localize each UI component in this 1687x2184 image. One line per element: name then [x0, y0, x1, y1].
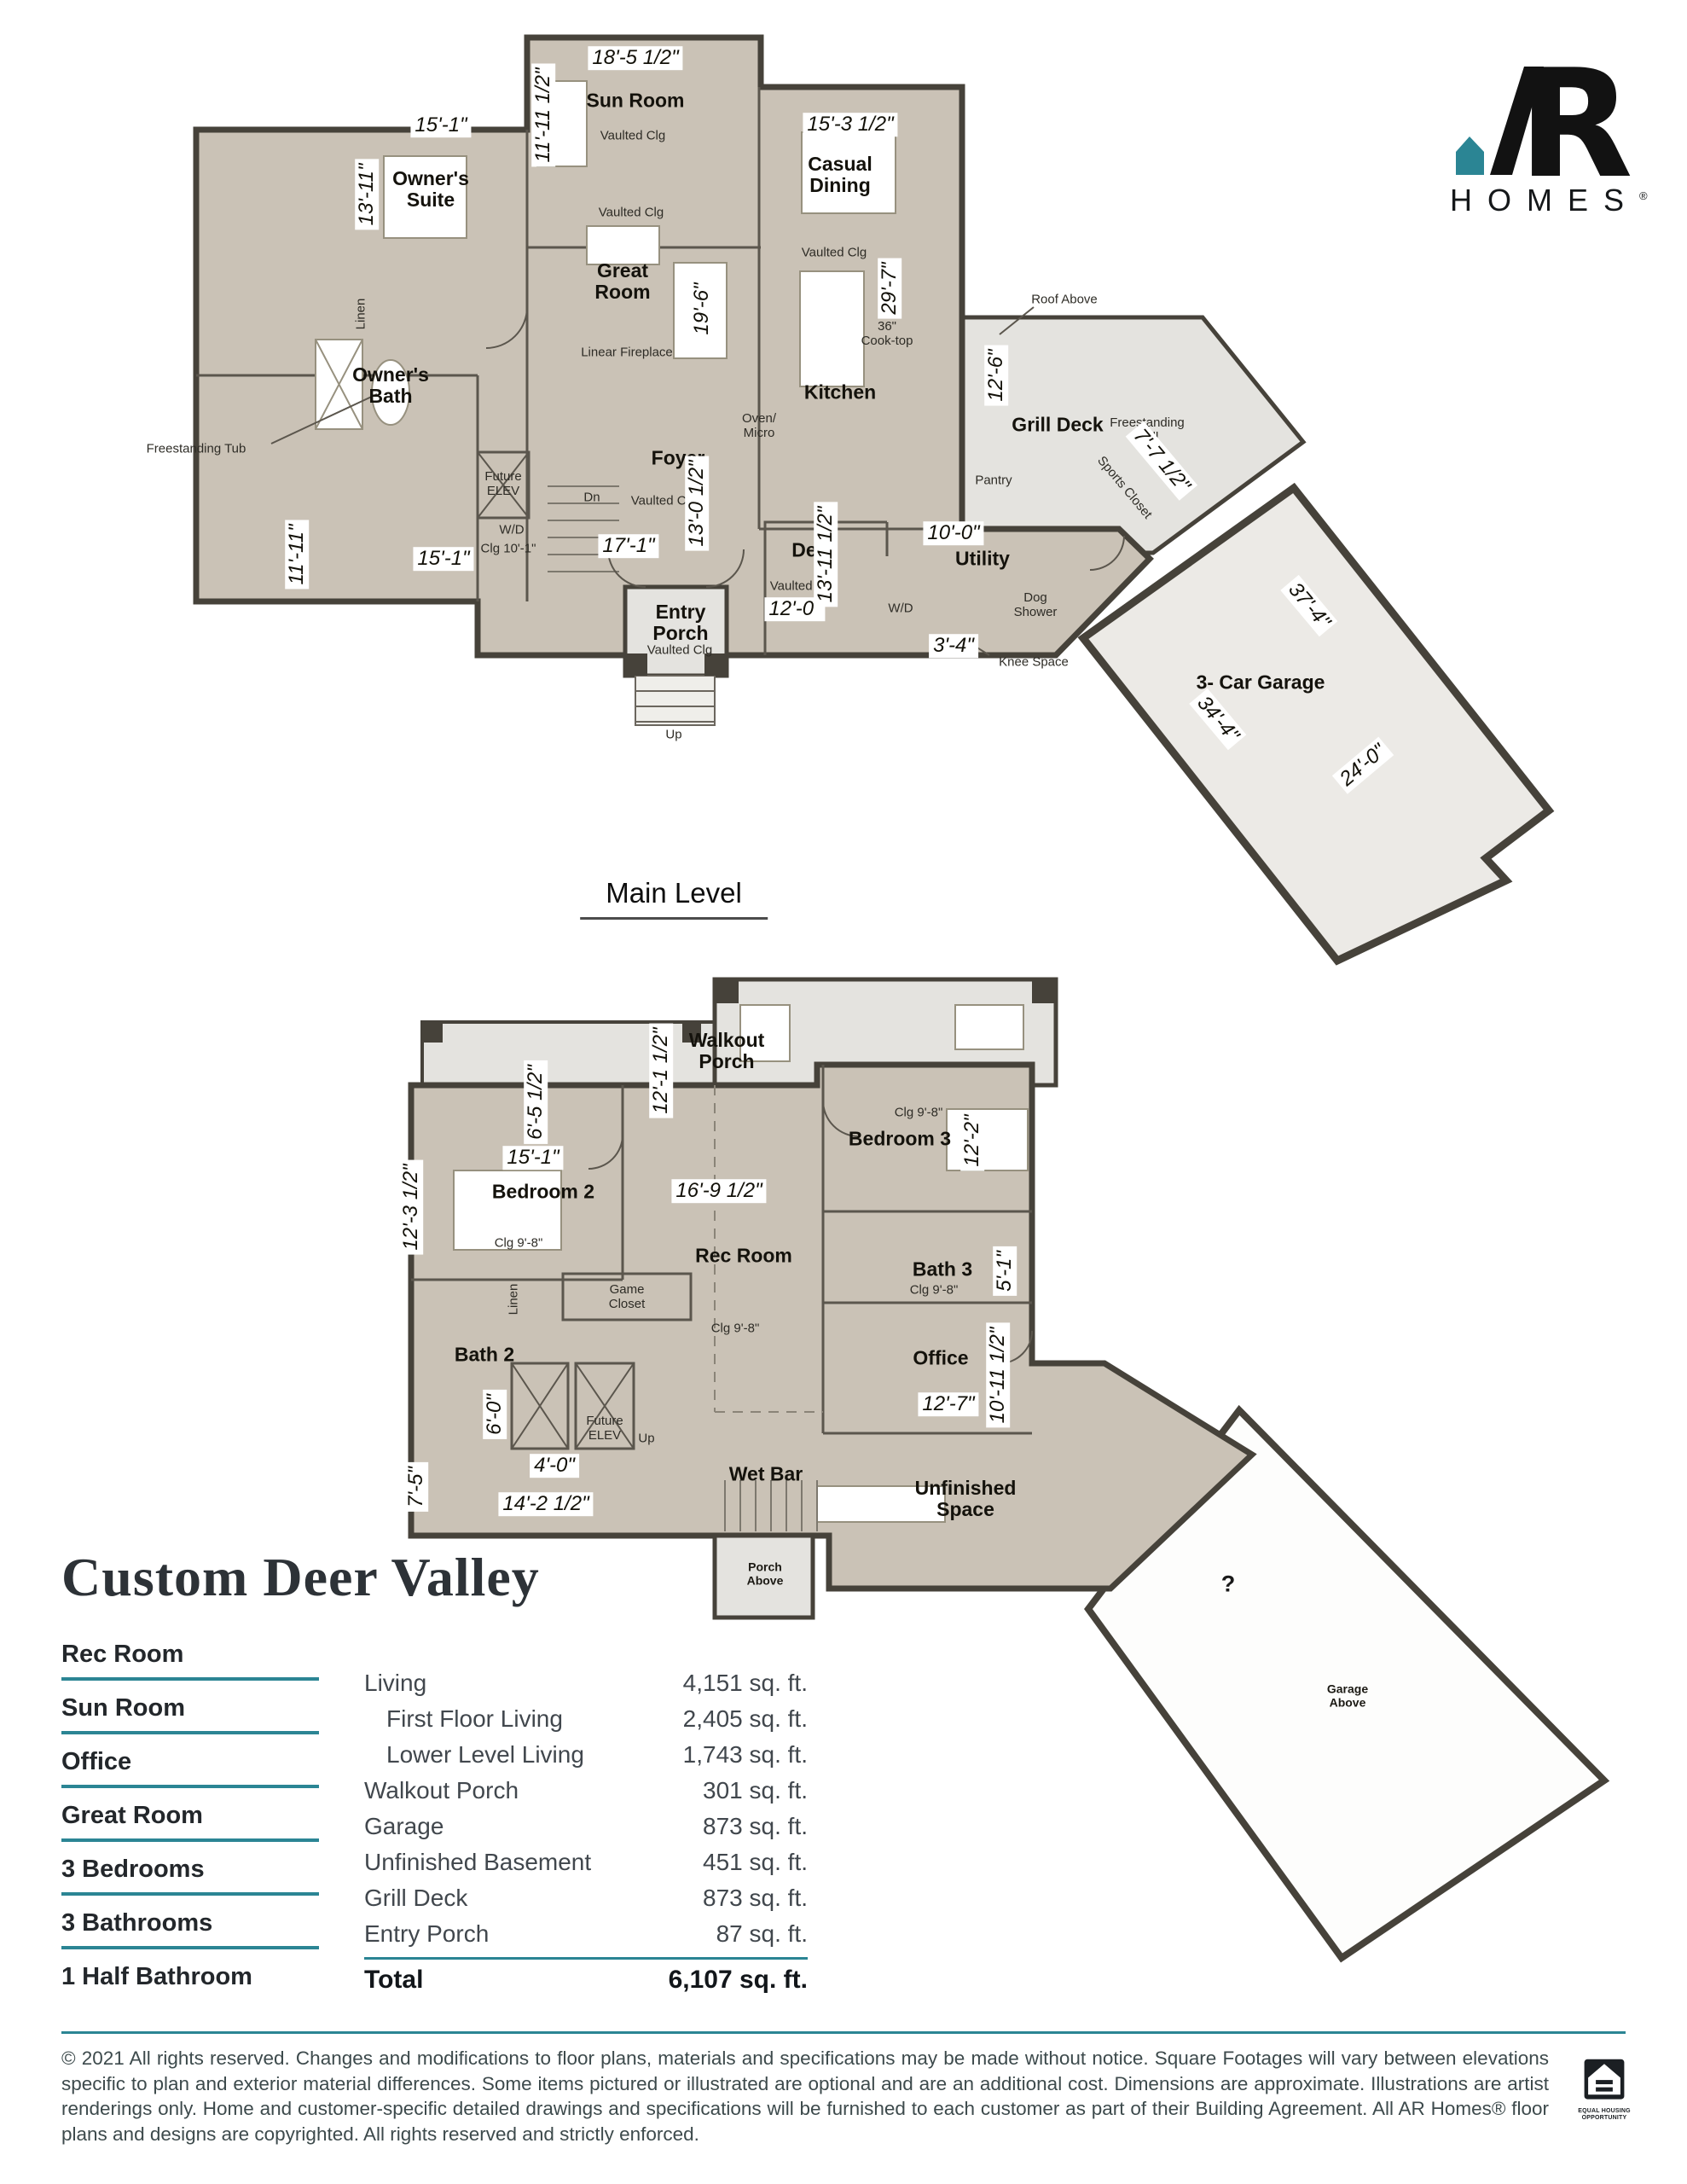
- total-value: 6,107 sq. ft.: [669, 1960, 808, 2001]
- annotation-vaulted-clg: Vaulted Clg: [599, 206, 664, 221]
- room-label-bedroom-2: Bedroom 2: [492, 1182, 594, 1203]
- annotation-vaulted-clg: Vaulted Clg: [600, 130, 665, 144]
- room-label-walkout-porch: Walkout Porch: [680, 1030, 774, 1072]
- area-label: Grill Deck: [364, 1880, 467, 1916]
- dim-label: 13'-11 1/2": [814, 502, 838, 607]
- dim-label: 4'-0": [530, 1454, 579, 1478]
- area-label: Garage: [364, 1809, 443, 1844]
- dim-label: 15'-1": [413, 547, 473, 571]
- area-value: 451 sq. ft.: [703, 1844, 808, 1880]
- annotation-clg-9-8: Clg 9'-8": [895, 1107, 943, 1121]
- table-row: Lower Level Living1,743 sq. ft.: [364, 1737, 808, 1773]
- dim-label: 5'-1": [993, 1246, 1017, 1296]
- annotation-vaulted-clg: Vaulted Clg: [647, 644, 712, 659]
- annotation-cooktop: 36" Cook-top: [860, 320, 914, 349]
- table-row: First Floor Living2,405 sq. ft.: [364, 1701, 808, 1737]
- area-label: First Floor Living: [364, 1701, 563, 1737]
- area-label: Walkout Porch: [364, 1773, 519, 1809]
- equal-housing-logo: EQUAL HOUSING OPPORTUNITY: [1578, 2058, 1631, 2121]
- annotation-garage-above: Garage Above: [1318, 1682, 1377, 1709]
- table-row: Garage873 sq. ft.: [364, 1809, 808, 1844]
- table-row: Walkout Porch301 sq. ft.: [364, 1773, 808, 1809]
- annotation-clg-9-8: Clg 9'-8": [495, 1237, 543, 1252]
- room-label-kitchen: Kitchen: [804, 382, 876, 404]
- room-label-casual-dining: Casual Dining: [793, 154, 887, 196]
- area-value: 87 sq. ft.: [716, 1916, 808, 1952]
- table-row: Entry Porch87 sq. ft.: [364, 1916, 808, 1952]
- entry-steps: [635, 676, 715, 725]
- dim-label: 29'-7": [878, 258, 901, 318]
- room-label-grill-deck: Grill Deck: [1012, 415, 1103, 436]
- area-value: 301 sq. ft.: [703, 1773, 808, 1809]
- table-row: Grill Deck873 sq. ft.: [364, 1880, 808, 1916]
- dim-label: 3'-4": [929, 634, 978, 658]
- dim-label: 15'-1": [502, 1146, 563, 1170]
- dim-label: 15'-3 1/2": [803, 113, 897, 136]
- annotation-future-elev: Future ELEV: [473, 470, 533, 499]
- feature-item: Office: [61, 1747, 319, 1788]
- table-row: Living4,151 sq. ft.: [364, 1665, 808, 1701]
- room-label-entry-porch: Entry Porch: [642, 601, 719, 644]
- annotation-linen: Linen: [355, 299, 369, 330]
- area-label: Living: [364, 1665, 426, 1701]
- equal-housing-caption: EQUAL HOUSING OPPORTUNITY: [1578, 2108, 1631, 2121]
- room-label-owners-bath: Owner's Bath: [346, 364, 436, 407]
- annotation-wd: W/D: [499, 524, 524, 538]
- annotation-linen: Linen: [507, 1284, 522, 1316]
- annotation-roof-above: Roof Above: [1031, 293, 1098, 308]
- dim-label: 12'-7": [918, 1392, 978, 1416]
- main-level-caption: Main Level: [580, 875, 768, 920]
- dim-label: 15'-1": [410, 113, 471, 137]
- feature-item: 3 Bedrooms: [61, 1855, 319, 1896]
- logo-wordmark-text: HOMES: [1450, 183, 1639, 218]
- annotation-linear-fireplace: Linear Fireplace: [581, 346, 673, 361]
- dim-label: 12'-2": [960, 1110, 984, 1170]
- footer-divider: [61, 2031, 1626, 2034]
- area-value: 873 sq. ft.: [703, 1880, 808, 1916]
- dim-label: 14'-2 1/2": [498, 1492, 593, 1516]
- annotation-freestanding-tub: Freestanding Tub: [147, 443, 246, 457]
- room-label-utility: Utility: [955, 549, 1010, 570]
- area-table: Living4,151 sq. ft. First Floor Living2,…: [364, 1665, 808, 2001]
- area-value: 1,743 sq. ft.: [683, 1737, 808, 1773]
- dim-label: 12'-3 1/2": [399, 1159, 423, 1254]
- logo-registered-mark: ®: [1639, 189, 1648, 202]
- dim-label: 6'-0": [483, 1390, 507, 1439]
- annotation-future-elev: Future ELEV: [575, 1414, 635, 1443]
- room-label-garage: 3- Car Garage: [1197, 672, 1325, 694]
- brand-logo: R: [1441, 34, 1646, 256]
- room-label-sun-room: Sun Room: [587, 90, 685, 112]
- annotation-game-closet: Game Closet: [597, 1283, 657, 1312]
- room-label-wet-bar: Wet Bar: [729, 1464, 803, 1485]
- table-total-row: Total6,107 sq. ft.: [364, 1960, 808, 2001]
- annotation-oven-micro: Oven/ Micro: [733, 412, 786, 441]
- dim-label: 19'-6": [690, 278, 714, 339]
- dim-label: 11'-11": [285, 520, 309, 590]
- logo-house-icon: [1456, 136, 1484, 175]
- area-label: Lower Level Living: [364, 1737, 584, 1773]
- dim-label: 16'-9 1/2": [671, 1179, 766, 1203]
- feature-item: 1 Half Bathroom: [61, 1962, 319, 2000]
- area-label: Unfinished Basement: [364, 1844, 591, 1880]
- annotation-clg-9-8: Clg 9'-8": [711, 1322, 760, 1337]
- table-row: Unfinished Basement451 sq. ft.: [364, 1844, 808, 1880]
- annotation-wd: W/D: [888, 602, 913, 617]
- dim-label: 13'-0 1/2": [685, 456, 709, 550]
- feature-item: 3 Bathrooms: [61, 1908, 319, 1949]
- annotation-dn: Dn: [583, 491, 600, 506]
- annotation-dog-shower: Dog Shower: [1007, 591, 1064, 620]
- dim-label: 13'-11": [355, 160, 379, 230]
- room-label-bath-3: Bath 3: [913, 1259, 972, 1281]
- area-value: 873 sq. ft.: [703, 1809, 808, 1844]
- feature-item: Sun Room: [61, 1693, 319, 1734]
- logo-wordmark: HOMES®: [1450, 183, 1648, 218]
- room-label-owners-suite: Owner's Suite: [382, 168, 480, 211]
- annotation-up: Up: [638, 1432, 654, 1447]
- dim-label: 17'-1": [598, 534, 658, 558]
- dim-label: 10'-11 1/2": [986, 1323, 1010, 1428]
- area-value: 2,405 sq. ft.: [683, 1701, 808, 1737]
- annotation-knee-space: Knee Space: [999, 656, 1069, 671]
- annotation-vaulted-clg: Vaulted Clg: [802, 247, 867, 261]
- dim-label: 11'-11 1/2": [531, 64, 555, 167]
- dim-label: 6'-5 1/2": [524, 1060, 548, 1144]
- room-label-rec-room: Rec Room: [695, 1246, 792, 1267]
- feature-item: Rec Room: [61, 1640, 319, 1681]
- dim-label: 12'-6": [984, 345, 1008, 405]
- dim-label: 10'-0": [923, 521, 983, 545]
- room-label-office: Office: [913, 1348, 968, 1369]
- dim-label: 12'-1 1/2": [649, 1023, 673, 1118]
- area-value: 4,151 sq. ft.: [683, 1665, 808, 1701]
- annotation-clg-10-1: Clg 10'-1": [481, 543, 536, 557]
- dim-label: 18'-5 1/2": [588, 46, 682, 70]
- room-label-bedroom-3: Bedroom 3: [849, 1129, 951, 1150]
- annotation-clg-9-8: Clg 9'-8": [910, 1284, 959, 1298]
- page: R HOMES® Sun Room Owner's Suite Casual D…: [0, 0, 1687, 2184]
- feature-item: Great Room: [61, 1801, 319, 1842]
- room-label-great-room: Great Room: [584, 260, 661, 303]
- feature-list: Rec Room Sun Room Office Great Room 3 Be…: [61, 1640, 319, 2013]
- dim-label: 7'-5": [404, 1462, 428, 1512]
- area-label: Entry Porch: [364, 1916, 489, 1952]
- annotation-porch-above: Porch Above: [739, 1560, 791, 1587]
- annotation-up: Up: [665, 729, 681, 743]
- page-title: Custom Deer Valley: [61, 1546, 540, 1609]
- room-label-bath-2: Bath 2: [455, 1345, 514, 1366]
- annotation-question-mark: ?: [1221, 1571, 1236, 1598]
- copyright-text: © 2021 All rights reserved. Changes and …: [61, 2046, 1549, 2147]
- annotation-pantry: Pantry: [975, 474, 1012, 489]
- total-label: Total: [364, 1960, 423, 2001]
- room-label-unfinished-space: Unfinished Space: [913, 1478, 1019, 1520]
- equal-housing-icon: [1581, 2058, 1627, 2104]
